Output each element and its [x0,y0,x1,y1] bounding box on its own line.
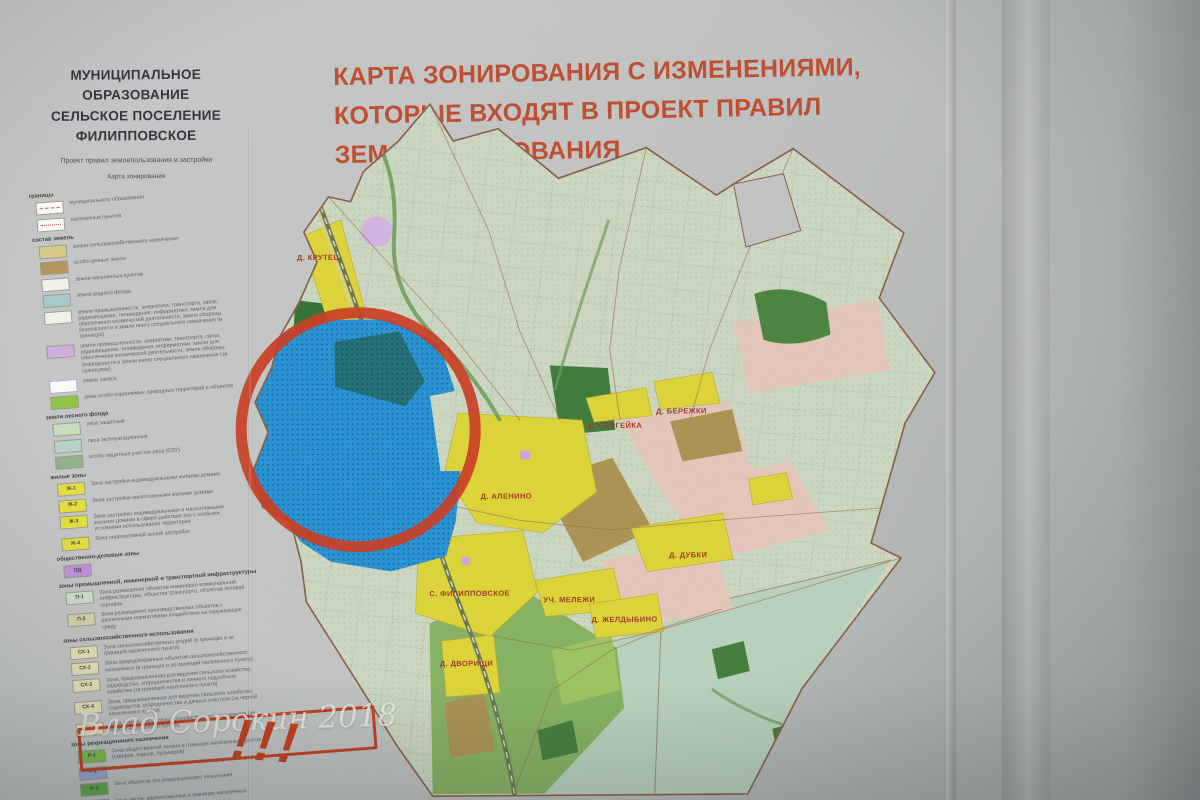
legend-zone-code: Ж-2 [68,503,78,509]
legend-swatch [52,422,81,437]
legend-swatch: П-2 [67,613,96,628]
map-label: Д. ДУБКИ [669,550,707,559]
paper-crease-2 [1002,0,1050,800]
purple-zone-nw [361,216,393,246]
legend-zone-code: Р-3 [90,786,98,792]
map-label: Д. АЛЕНИНО [481,491,532,500]
legend-swatch: Ж-4 [61,537,90,552]
purple-zone-center [520,450,530,459]
legend-swatch: Р-3 [80,782,109,797]
map-label: Д. КРУТЕЦ [297,253,340,262]
legend-swatch [44,310,73,325]
map-label: Д. ЖЕЛДЫБИНО [592,615,658,624]
legend-swatch [40,260,69,275]
legend-swatch [54,438,83,453]
legend-swatch [36,217,65,232]
legend-zone-code: Ж-4 [71,541,81,547]
legend-zone-code: Ж-3 [69,519,79,525]
map-label: Д. СЕРГЕЙКА [588,421,642,430]
legend-zone-code: П-2 [77,617,86,623]
legend-swatch [41,277,70,292]
legend-swatch [39,244,68,259]
map-label: УЧ. МЕЛЕЖИ [543,595,595,604]
map-label: Д. ДВОРИЩИ [440,659,493,668]
map-label: Д. БЕРЕЖКИ [656,406,707,415]
paper-crease-1 [946,0,956,800]
legend-zone-code: Ж-1 [66,486,76,492]
legend-swatch: Ж-2 [58,498,87,513]
legend-swatch [50,395,79,410]
paper-fold-left [248,130,252,800]
legend-swatch: СХ-2 [71,661,100,676]
legend-swatch: Ж-1 [57,482,86,497]
legend-swatch [55,455,84,470]
legend-swatch: П-1 [65,590,94,605]
purple-zone-fil [461,557,469,565]
legend-zone-code: СХ-1 [78,650,90,656]
map-label: С. ФИЛИППОВСКОЕ [429,589,510,599]
legend-swatch: Ж-3 [59,515,88,530]
legend-zone-code: П-1 [75,595,84,601]
legend-line-symbol [39,207,60,210]
legend-swatch [49,378,78,393]
legend-swatch: СХ-1 [69,645,98,660]
legend-zone-code: СХ-3 [80,682,92,688]
legend-swatch [42,293,71,308]
edge-shadow-right [1120,0,1200,800]
photo-of-zoning-poster: МУНИЦИПАЛЬНОЕ ОБРАЗОВАНИЕ СЕЛЬСКОЕ ПОСЕЛ… [0,0,1200,800]
legend-swatch: СХ-3 [72,678,101,693]
legend-swatch [46,344,75,359]
legend-zone-code: СХ-2 [79,666,91,672]
legend-line-symbol [41,223,62,226]
legend-zone-code: ОД [74,568,82,574]
zoning-map: Д. КРУТЕЦД. БЕРЕЖКИД. СЕРГЕЙКАД. АЛЕНИНО… [188,88,953,800]
legend-swatch: ОД [63,564,92,579]
legend-swatch [35,200,64,215]
